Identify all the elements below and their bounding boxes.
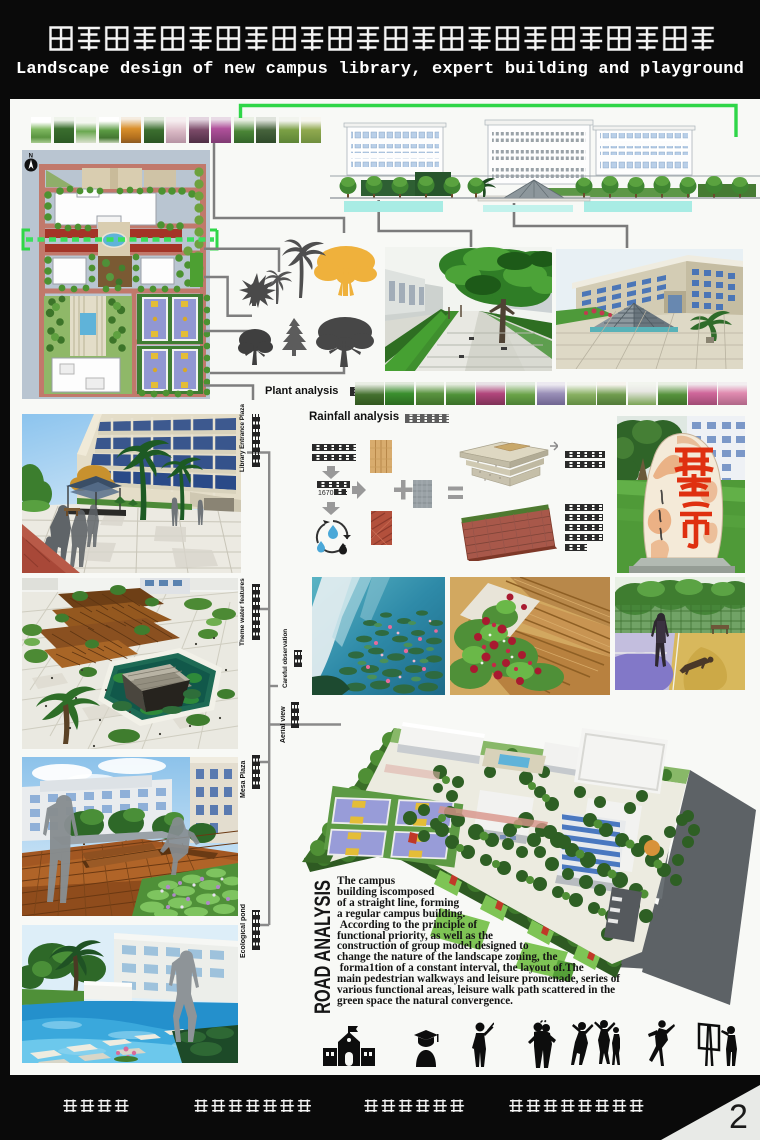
svg-text:N: N xyxy=(29,154,33,160)
svg-text:ROAD ANALYSIS: ROAD ANALYSIS xyxy=(310,880,334,1014)
